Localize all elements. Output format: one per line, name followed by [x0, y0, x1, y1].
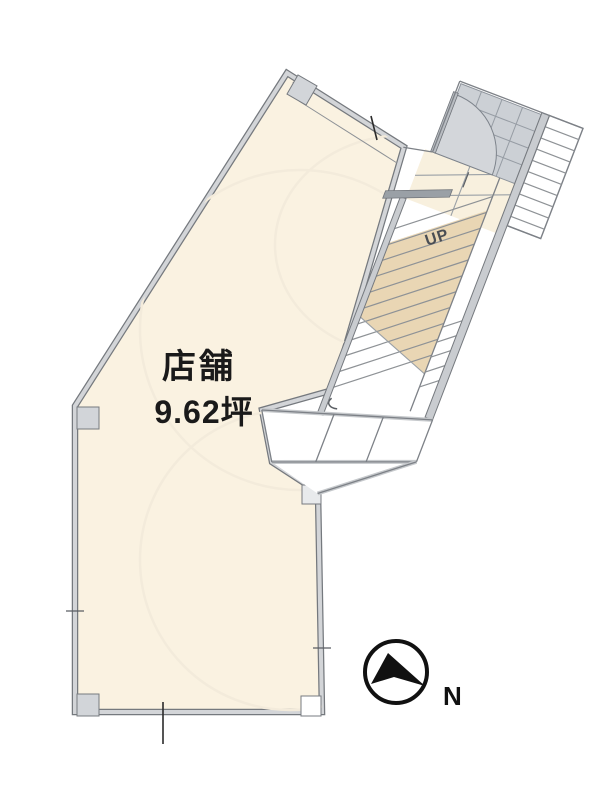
compass: N [365, 641, 462, 711]
column-left-junction [77, 407, 99, 429]
north-arrow-icon [371, 653, 425, 686]
room-area-label: 9.62坪 [154, 394, 253, 430]
column-bottom-left [77, 694, 99, 716]
floor-plan-canvas: 店舗 9.62坪 [0, 0, 603, 800]
north-label: N [443, 681, 462, 711]
column-bottom-right [301, 696, 321, 716]
room-name-label: 店舗 [162, 348, 236, 386]
floor-plan-page: 店舗 9.62坪 [0, 0, 603, 800]
